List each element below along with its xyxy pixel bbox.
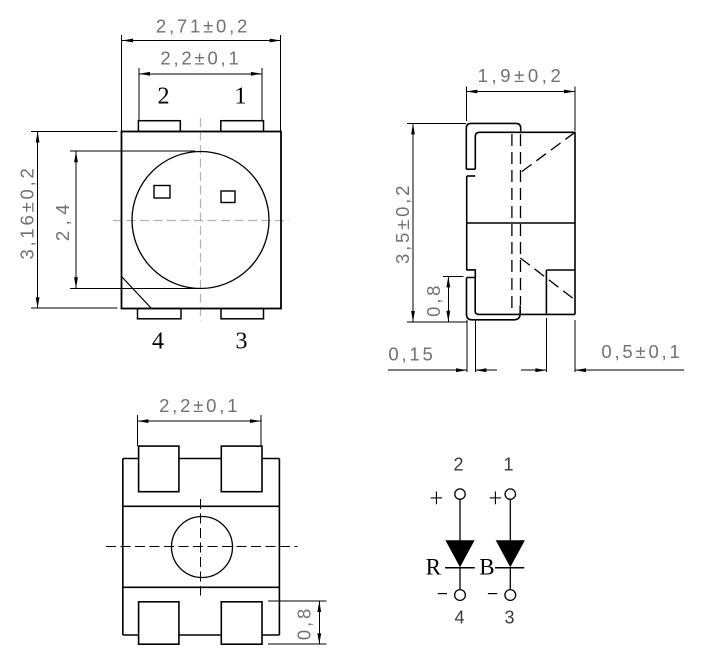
svg-text:4: 4 — [454, 608, 464, 628]
svg-text:1: 1 — [235, 84, 247, 110]
svg-text:B: B — [479, 555, 494, 580]
svg-text:3: 3 — [236, 329, 248, 355]
svg-text:0,8: 0,8 — [294, 606, 315, 640]
svg-text:0,5±0,1: 0,5±0,1 — [601, 341, 682, 362]
svg-text:2: 2 — [453, 455, 463, 475]
svg-text:2,4: 2,4 — [52, 199, 73, 241]
svg-text:3,16±0,2: 3,16±0,2 — [17, 165, 38, 259]
svg-text:2,2±0,1: 2,2±0,1 — [159, 395, 240, 416]
svg-text:0,15: 0,15 — [388, 344, 435, 365]
svg-text:3: 3 — [504, 608, 514, 628]
svg-text:R: R — [426, 555, 442, 580]
svg-text:2,71±0,2: 2,71±0,2 — [156, 16, 250, 37]
svg-text:1,9±0,2: 1,9±0,2 — [478, 65, 565, 86]
svg-text:2: 2 — [158, 84, 170, 110]
svg-text:4: 4 — [152, 329, 164, 355]
svg-text:3,5±0,2: 3,5±0,2 — [392, 183, 413, 264]
svg-text:1: 1 — [503, 455, 513, 475]
svg-text:2,2±0,1: 2,2±0,1 — [160, 48, 241, 69]
svg-text:0,8: 0,8 — [423, 283, 444, 317]
